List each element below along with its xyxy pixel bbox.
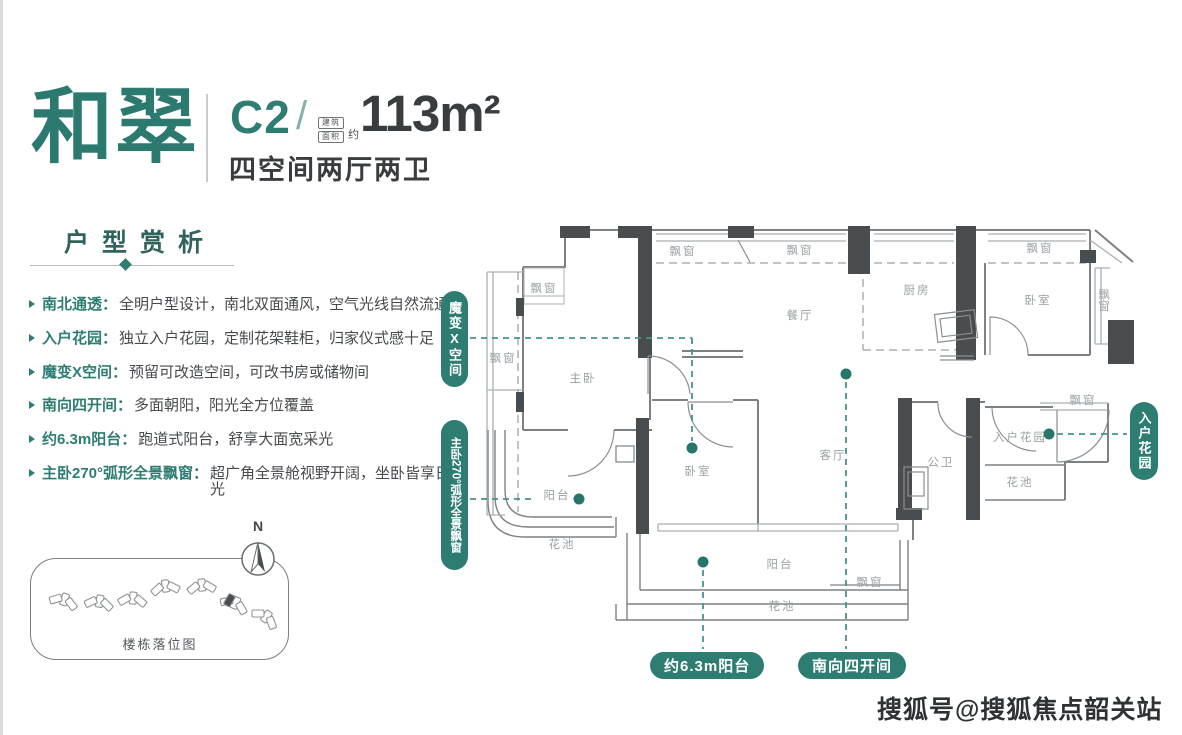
room-label-kitchen: 厨房 bbox=[904, 282, 931, 298]
label-baywindow-top1: 飘窗 bbox=[670, 243, 697, 259]
callout-270-bay-window: 主卧270°弧形全景飘窗 bbox=[441, 420, 468, 570]
walls-thin bbox=[488, 230, 1133, 620]
callout-magic-x-space: 魔变X空间 bbox=[441, 291, 468, 387]
label-flowerbed-south: 花池 bbox=[769, 598, 796, 614]
callout-entry-garden: 入户花园 bbox=[1130, 402, 1158, 480]
label-flowerbed-west: 花池 bbox=[549, 536, 576, 552]
room-label-balcony-west: 阳台 bbox=[544, 487, 571, 503]
label-baywindow-master: 飘窗 bbox=[531, 280, 558, 296]
floor-plan-drawing bbox=[0, 0, 1182, 735]
flyer-page: { "brand": { "name": "和翠" }, "unit": { "… bbox=[0, 0, 1182, 735]
label-flowerbed-east: 花池 bbox=[1007, 474, 1034, 490]
room-label-dining: 餐厅 bbox=[787, 307, 814, 323]
room-label-bathroom: 公卫 bbox=[928, 454, 955, 470]
label-baywindow-top2: 飘窗 bbox=[787, 242, 814, 258]
room-label-entry-garden: 入户花园 bbox=[993, 429, 1047, 445]
label-baywindow-garden: 飘窗 bbox=[1070, 392, 1097, 408]
callout-south-four-bays: 南向四开间 bbox=[798, 652, 906, 679]
room-label-living: 客厅 bbox=[820, 447, 847, 463]
callout-balcony-6-3m: 约6.3m阳台 bbox=[650, 652, 764, 679]
label-baywindow-west: 飘窗 bbox=[490, 350, 517, 366]
room-label-master-bedroom: 主卧 bbox=[570, 370, 597, 386]
label-baywindow-living: 飘窗 bbox=[857, 574, 884, 590]
building-footprint-icons bbox=[47, 578, 282, 632]
label-baywindow-top3: 飘窗 bbox=[1027, 240, 1054, 256]
room-label-balcony-south: 阳台 bbox=[767, 556, 794, 572]
room-label-bedroom-ne: 卧室 bbox=[1025, 292, 1052, 308]
watermark-text: 搜狐号@搜狐焦点韶关站 bbox=[877, 690, 1162, 726]
compass-icon bbox=[242, 542, 274, 575]
room-label-bedroom-mid: 卧室 bbox=[685, 463, 712, 479]
label-baywindow-east: 飘窗 bbox=[1095, 289, 1111, 312]
dashed-lines bbox=[518, 240, 1086, 512]
walls-thick bbox=[516, 226, 1134, 534]
